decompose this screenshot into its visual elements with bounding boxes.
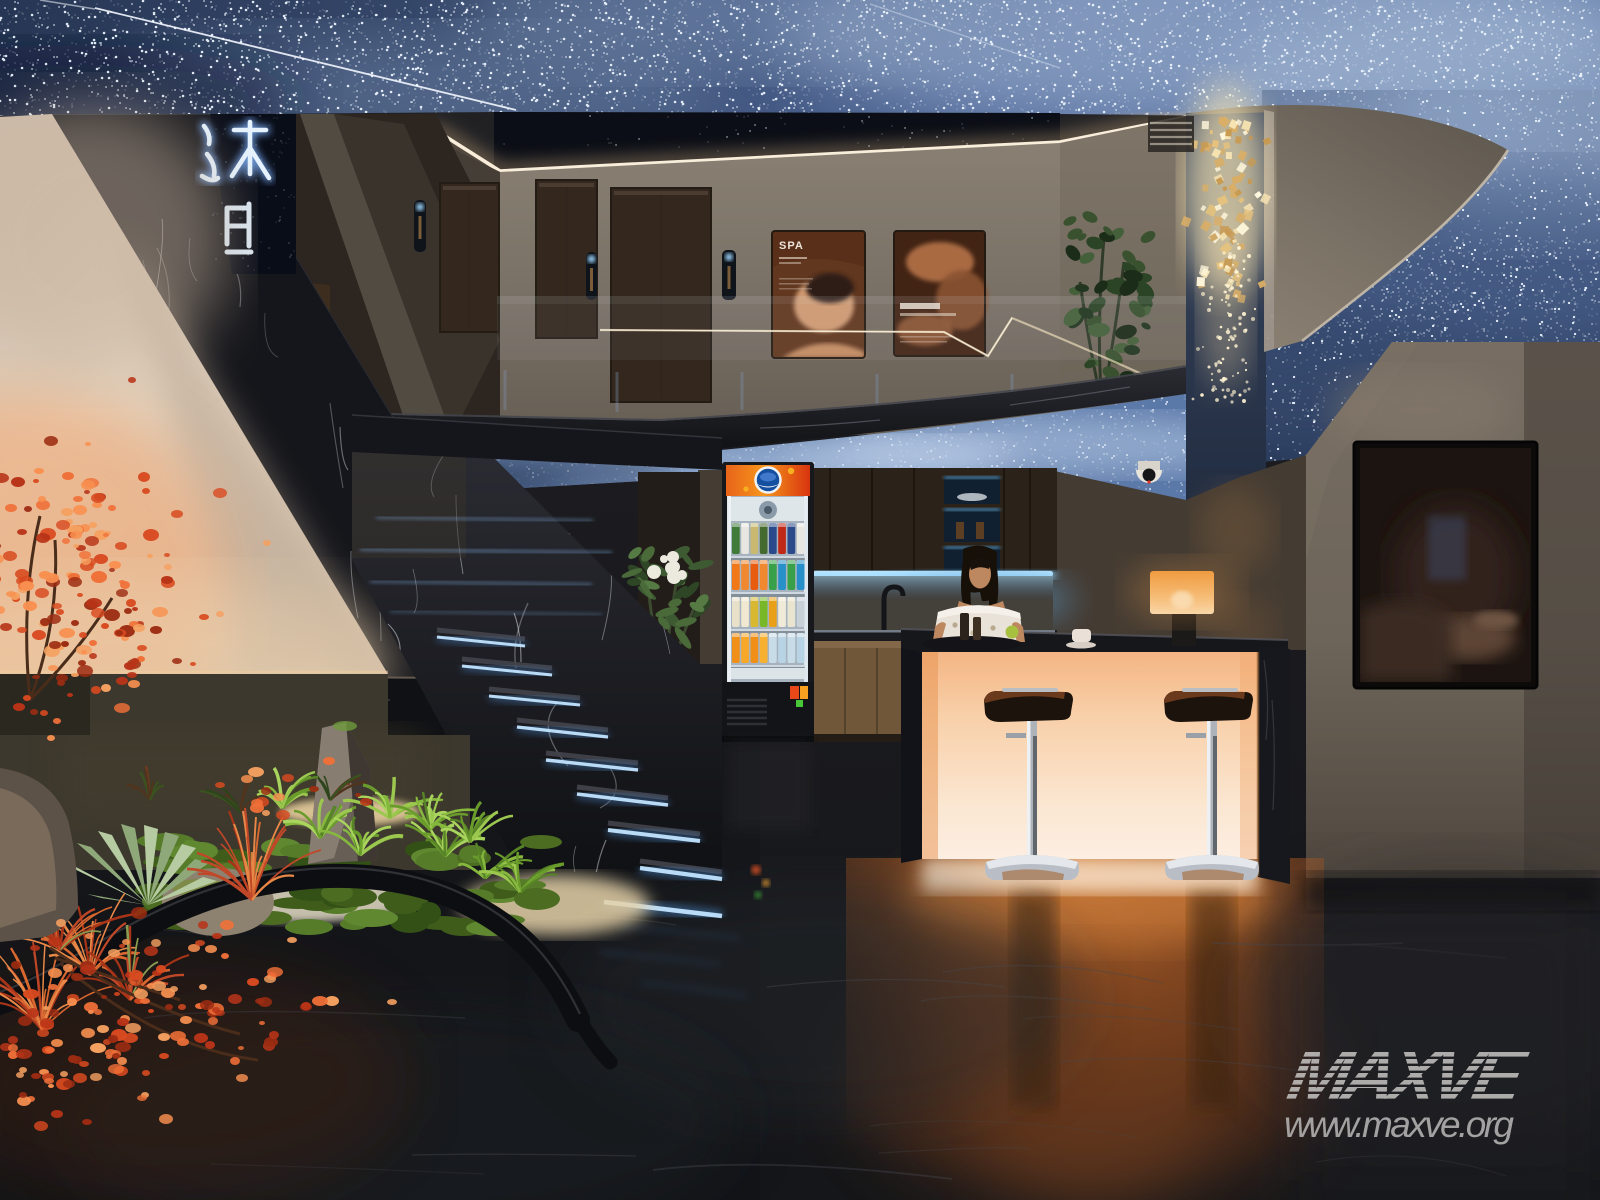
svg-text:SPA: SPA: [779, 240, 804, 252]
svg-text:www.maxve.org: www.maxve.org: [1284, 1104, 1514, 1145]
